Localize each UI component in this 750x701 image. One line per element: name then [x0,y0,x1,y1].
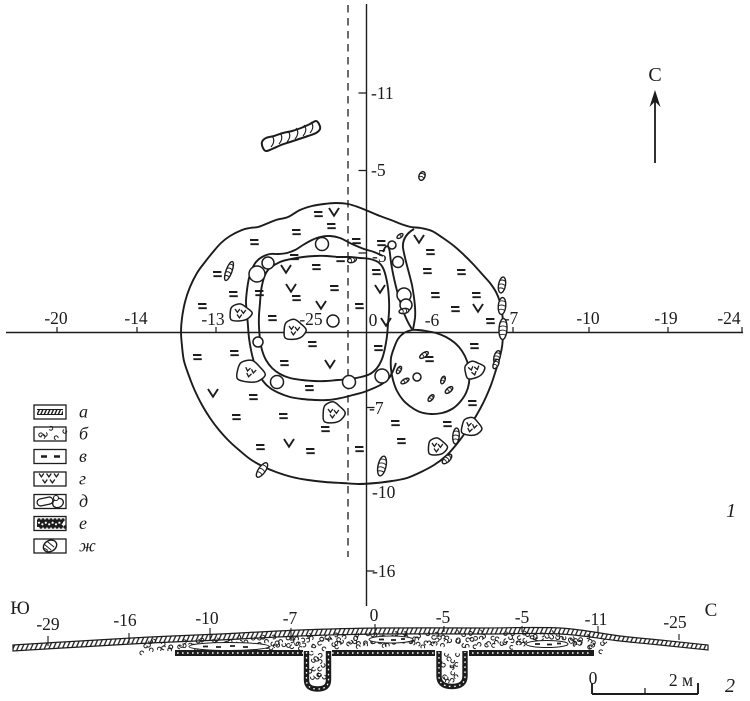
svg-text:Ю: Ю [10,598,30,619]
svg-text:б: б [79,424,89,444]
svg-text:в: в [79,446,87,466]
svg-text:-7: -7 [283,608,298,628]
svg-text:-5: -5 [515,607,530,627]
svg-text:С: С [648,64,661,86]
svg-text:-24: -24 [717,308,741,328]
svg-text:-10: -10 [576,308,600,328]
svg-text:1: 1 [726,500,736,522]
svg-text:-19: -19 [654,308,678,328]
svg-text:-11: -11 [585,609,608,629]
svg-text:-14: -14 [124,308,148,328]
svg-text:-11: -11 [371,83,394,103]
svg-text:0: 0 [369,310,378,330]
svg-text:С: С [705,600,718,621]
svg-text:-5: -5 [436,607,451,627]
svg-text:-7: -7 [369,398,384,418]
svg-text:-10: -10 [195,608,219,628]
svg-text:0: 0 [589,668,598,688]
svg-text:-25: -25 [663,612,687,632]
svg-text:2: 2 [725,675,735,697]
svg-text:0: 0 [370,605,379,625]
svg-text:2 м: 2 м [669,670,693,690]
svg-text:а: а [79,402,88,422]
svg-text:-20: -20 [44,308,68,328]
svg-text:ж: ж [79,536,96,556]
svg-text:е: е [79,513,87,533]
svg-text:-13: -13 [201,309,225,329]
svg-text:-29: -29 [36,614,60,634]
svg-text:-10: -10 [372,482,396,502]
svg-text:-16: -16 [113,610,137,630]
svg-text:д: д [79,491,88,511]
svg-text:-6: -6 [425,310,440,330]
svg-text:-5: -5 [371,160,386,180]
svg-text:г: г [79,469,86,489]
svg-text:-16: -16 [372,561,396,581]
